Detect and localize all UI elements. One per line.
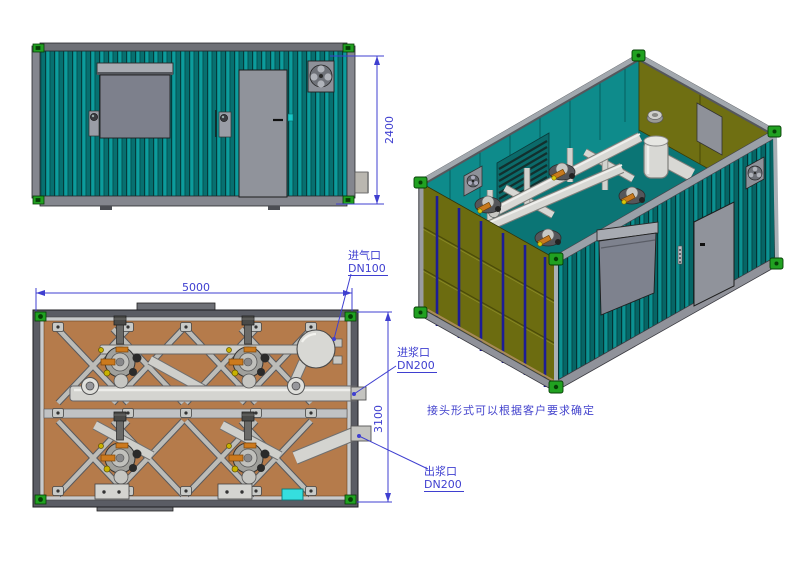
label-slurry-inlet: 进浆口 DN200: [397, 347, 437, 373]
elevation-foot: [268, 206, 280, 210]
plan-view: [33, 274, 428, 511]
elevation-latch: [89, 111, 99, 136]
dimension-height: 2400: [383, 112, 399, 148]
label-slurry-outlet-size: DN200: [424, 479, 464, 493]
elevation-pipe-stub: [355, 172, 368, 193]
plan-mid-rail: [44, 409, 347, 418]
label-slurry-inlet-size: DN200: [397, 360, 437, 374]
roof-vent-icon: [647, 111, 663, 124]
label-slurry-outlet-name: 出浆口: [424, 466, 464, 479]
label-slurry-outlet: 出浆口 DN200: [424, 466, 464, 492]
label-air-inlet-size: DN100: [348, 263, 388, 277]
side-elevation-view: [32, 43, 384, 210]
elevation-window: [97, 63, 173, 138]
label-slurry-inlet-name: 进浆口: [397, 347, 437, 360]
elevation-door: [239, 70, 293, 197]
dimension-length: 5000: [176, 281, 216, 294]
elevation-right-post: [347, 46, 355, 198]
elevation-top-rail: [40, 43, 347, 51]
fan-icon: [308, 61, 334, 92]
drawing-layer: [0, 0, 800, 566]
elevation-foot: [100, 206, 112, 210]
cad-drawing-canvas: 2400 5000 3100 进气口 DN100 进浆口 DN200 出浆口 D…: [0, 0, 800, 566]
label-air-inlet: 进气口 DN100: [348, 250, 388, 276]
plan-electric-box: [282, 489, 303, 500]
isometric-view: [414, 50, 783, 393]
note-connector: 接头形式可以根据客户要求确定: [427, 402, 595, 418]
slurry-outlet-stub: [351, 426, 371, 441]
elevation-wall: [40, 51, 347, 198]
label-air-inlet-name: 进气口: [348, 250, 388, 263]
elevation-bottom-rail: [40, 196, 347, 206]
door-knob: [288, 114, 293, 121]
elevation-left-post: [32, 46, 40, 198]
dimension-width: 3100: [372, 401, 388, 437]
